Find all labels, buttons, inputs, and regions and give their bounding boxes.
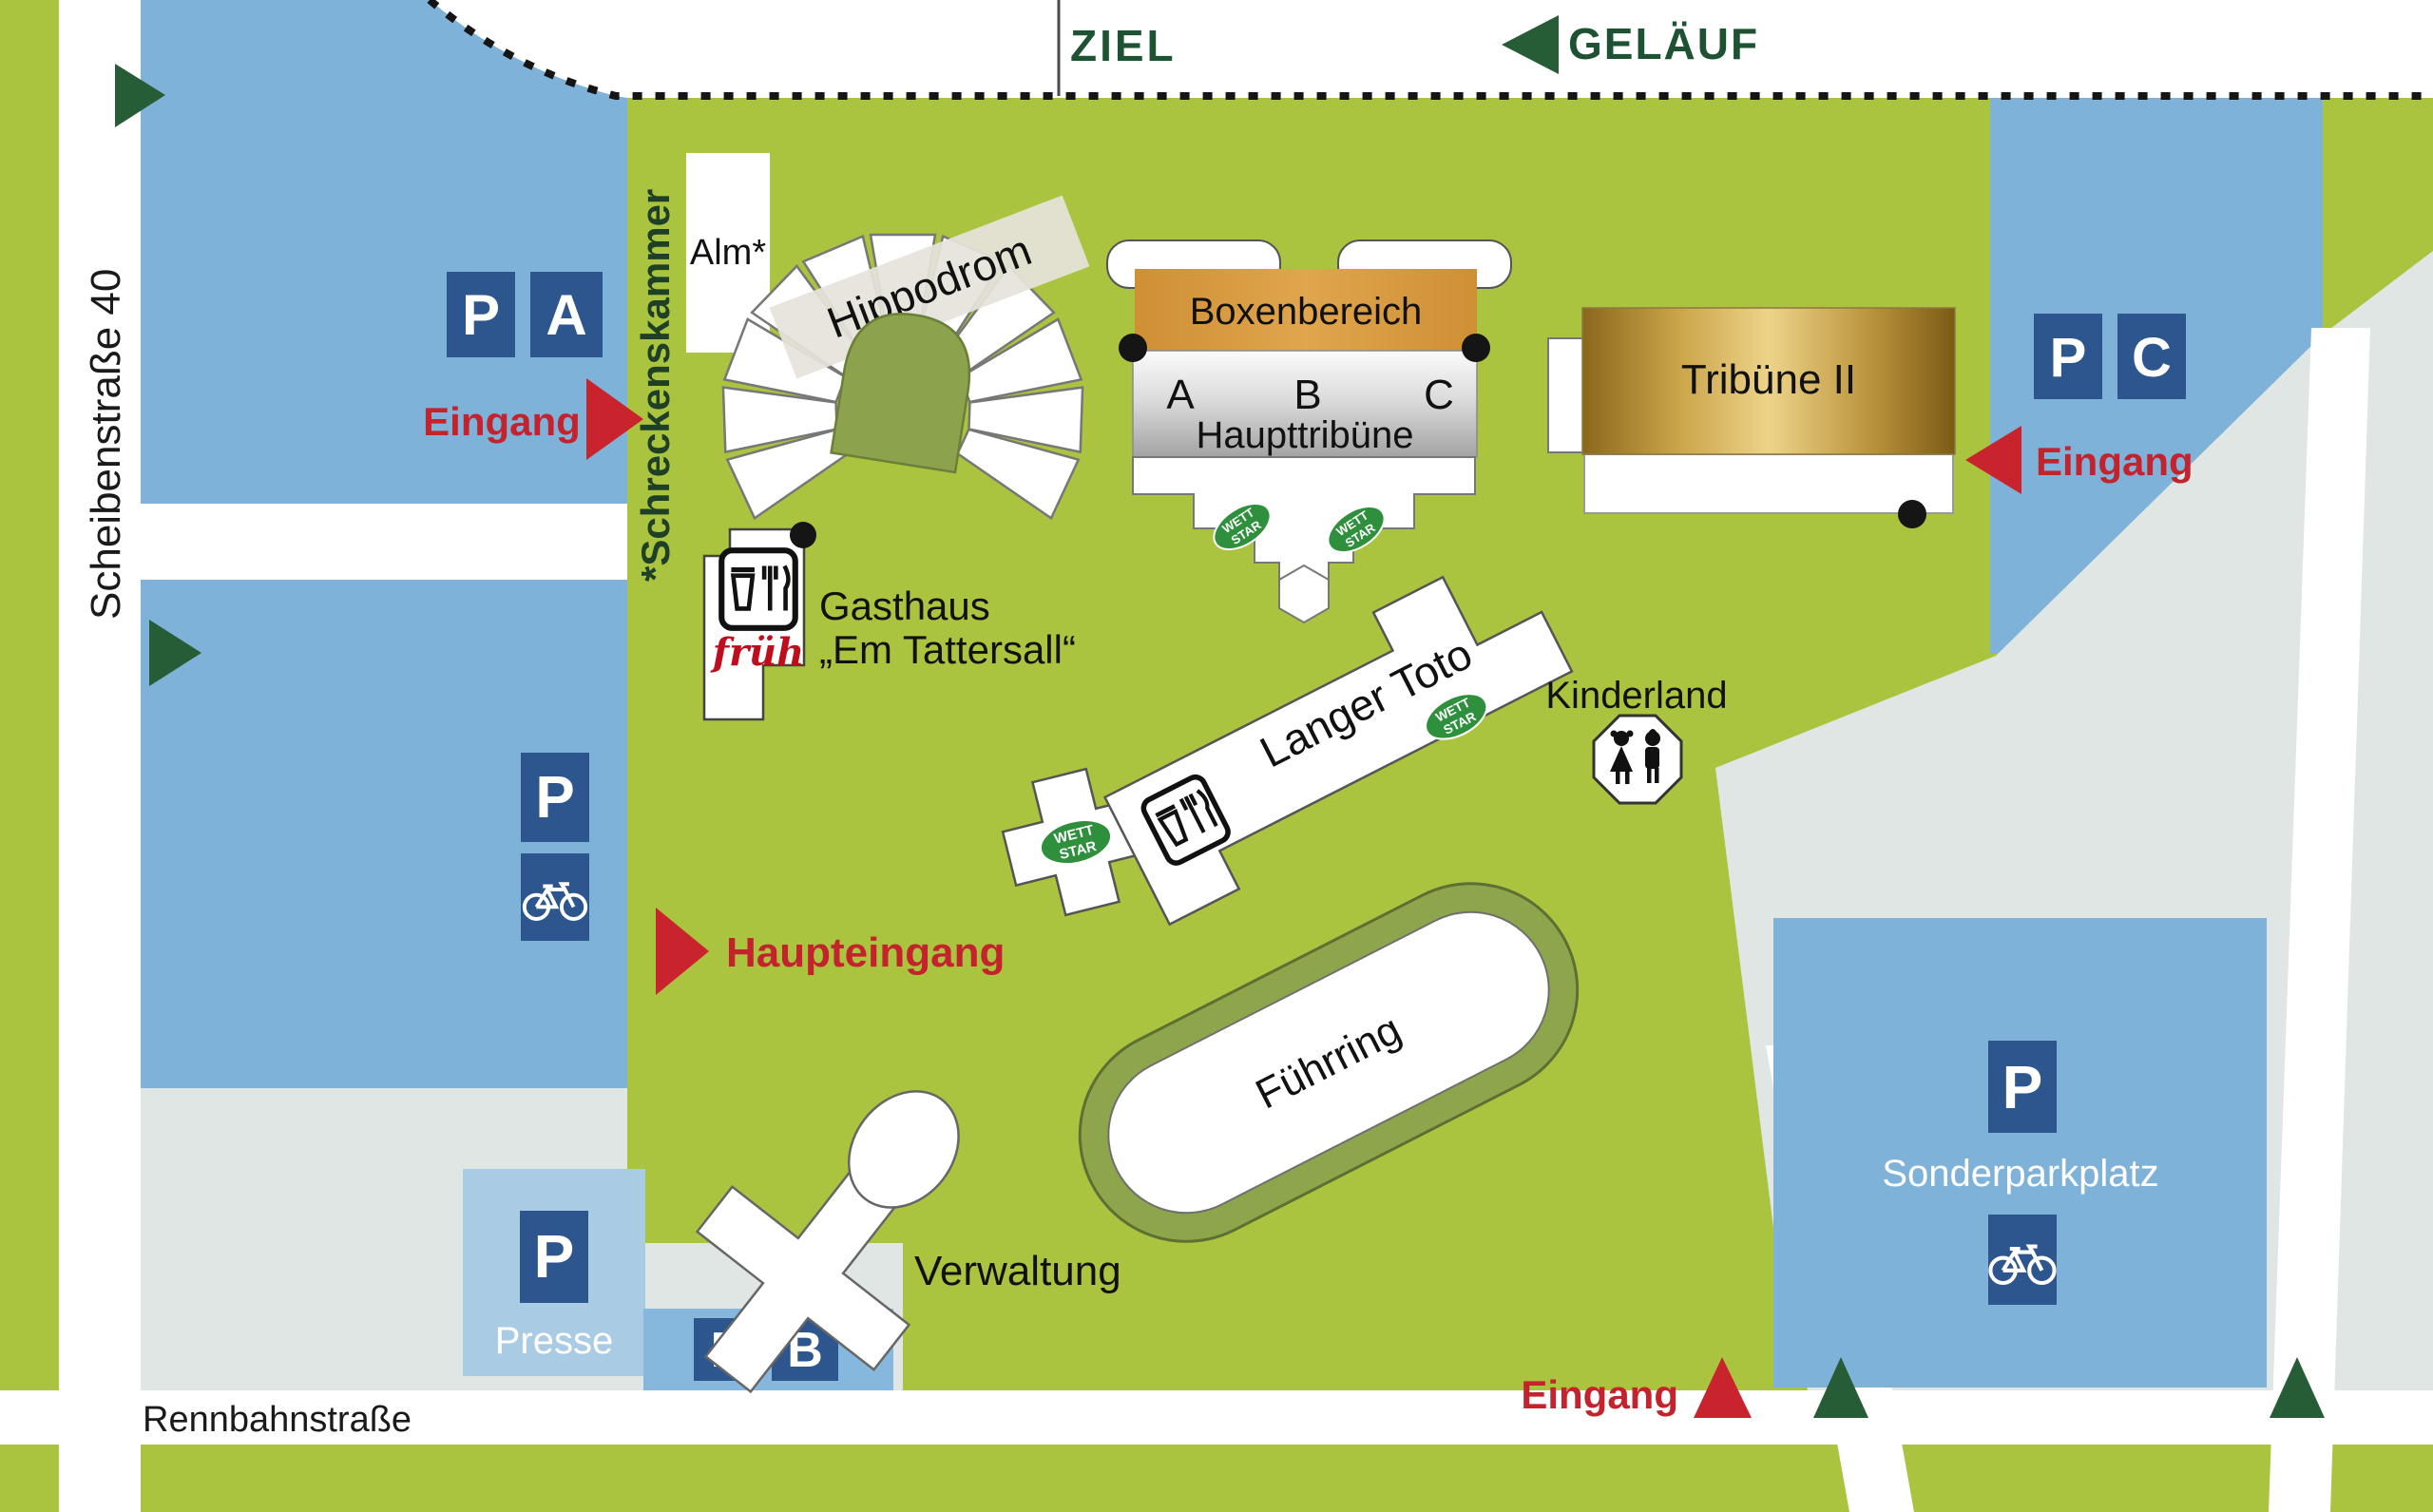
entrance-south-label: Eingang xyxy=(1521,1372,1678,1417)
parking-bike-p-letter: P xyxy=(535,765,574,831)
restaurant-icon xyxy=(721,550,795,628)
gasthaus-label-line2: „Em Tattersall“ xyxy=(819,627,1076,672)
ziel-label: ZIEL xyxy=(1070,21,1177,70)
verwaltung-label: Verwaltung xyxy=(914,1248,1121,1294)
tribuene2-complex: Tribüne II xyxy=(1548,308,1955,528)
alm-label: Alm* xyxy=(690,233,766,273)
racecourse-site-map: WETT STAR Sch xyxy=(0,0,2433,1512)
scheibenstrasse-street xyxy=(59,0,141,1512)
entrance-east-label: Eingang xyxy=(2036,439,2194,484)
parking-c-zone-letter: C xyxy=(2132,327,2172,389)
south-green-strip xyxy=(0,1445,2433,1512)
kinderland-octagon-sign xyxy=(1594,716,1681,803)
gasthaus-marker-dot xyxy=(790,522,816,548)
haupttribuene-label: Haupttribüne xyxy=(1196,414,1413,456)
kinderland-label: Kinderland xyxy=(1545,675,1727,717)
parking-presse-label: Presse xyxy=(495,1320,614,1362)
street-label-scheibenstrasse: Scheibenstraße 40 xyxy=(83,269,129,620)
frueh-brand-logo: früh xyxy=(710,630,804,675)
tribuene2-apron xyxy=(1584,454,1953,513)
tribune-marker-dot xyxy=(1462,334,1490,362)
gelaeuf-label: GELÄUF xyxy=(1568,19,1759,68)
tribune-section-b: B xyxy=(1293,372,1321,418)
tribune-marker-dot xyxy=(1119,334,1147,362)
parking-a-zone-letter: A xyxy=(546,283,586,347)
tribuene2-marker-dot xyxy=(1898,500,1926,528)
sonderparkplatz-label: Sonderparkplatz xyxy=(1882,1153,2158,1195)
entrance-north-label: Eingang xyxy=(423,399,581,444)
street-label-rennbahnstrasse: Rennbahnstraße xyxy=(143,1400,412,1440)
main-entrance-label: Haupteingang xyxy=(726,929,1005,976)
tribune-section-a: A xyxy=(1166,372,1195,418)
parking-c-p-letter: P xyxy=(2050,327,2087,389)
tribuene2-label: Tribüne II xyxy=(1681,356,1856,403)
gasthaus-label-line1: Gasthaus xyxy=(819,584,990,628)
parking-presse-p-letter: P xyxy=(534,1222,575,1291)
west-cross-street xyxy=(59,504,627,580)
street-label-schreckenskammer: *Schreckenskammer xyxy=(633,189,678,582)
sonderparkplatz-p-letter: P xyxy=(2002,1053,2043,1121)
parking-a-p-letter: P xyxy=(462,283,500,347)
boxenbereich-label: Boxenbereich xyxy=(1190,291,1423,333)
tribune-section-c: C xyxy=(1424,372,1454,418)
west-green-strip xyxy=(0,0,59,1512)
